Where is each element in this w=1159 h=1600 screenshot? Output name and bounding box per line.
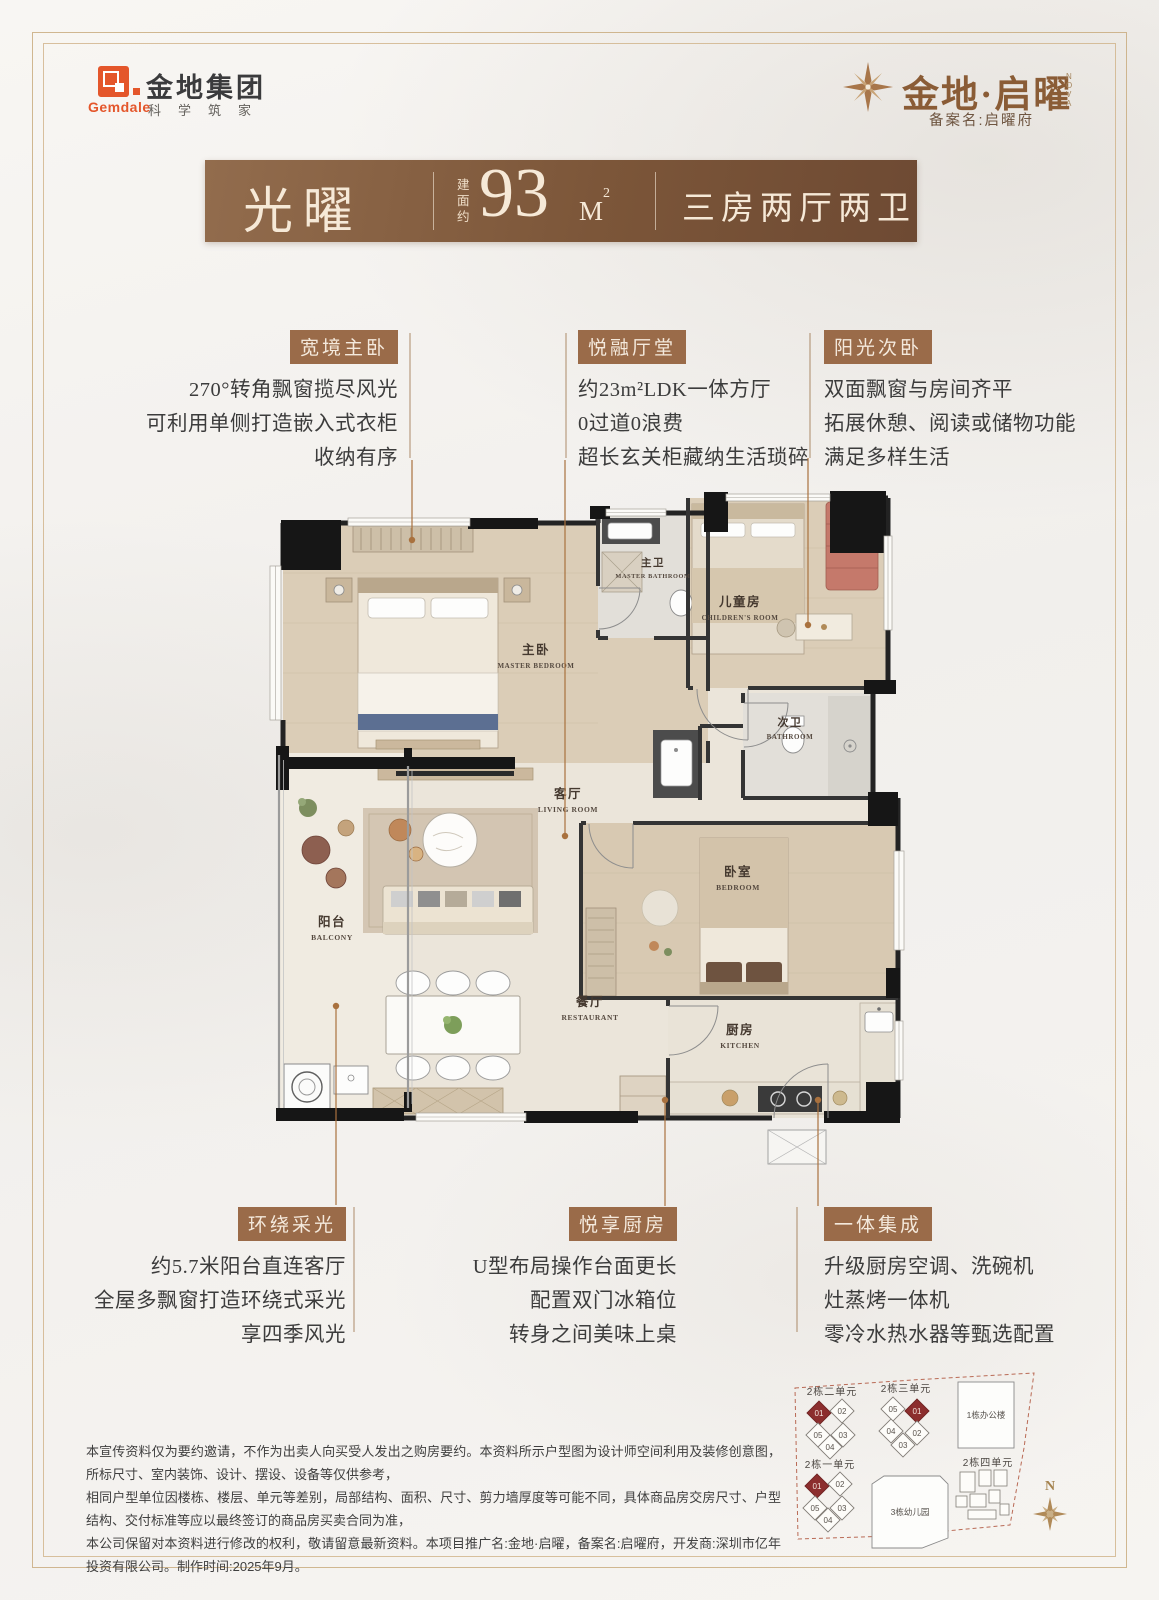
feature-living-hall: 悦融厅堂 约23m²LDK一体方厅 0过道0浪费 超长玄关柜藏纳生活琐碎 <box>578 330 813 475</box>
feature-line: 拓展休憩、阅读或储物功能 <box>824 407 1084 441</box>
feature-line: 约5.7米阳台直连客厅 <box>88 1250 346 1284</box>
entry-shaft <box>768 1130 826 1164</box>
banner-divider-1 <box>433 172 434 230</box>
feature-line: 双面飘窗与房间齐平 <box>824 373 1084 407</box>
feature-line: U型布局操作台面更长 <box>430 1250 677 1284</box>
brand-star-icon <box>843 62 893 112</box>
disclaimer-line: 相同户型单位因楼栋、楼层、单元等差别，局部结构、面积、尺寸、剪力墙厚度等可能不同… <box>86 1486 781 1532</box>
svg-text:02: 02 <box>838 1407 847 1416</box>
feature-line: 0过道0浪费 <box>578 407 813 441</box>
gemdale-name-en: Gemdale <box>88 99 151 115</box>
svg-text:03: 03 <box>838 1504 847 1513</box>
feature-line: 全屋多飘窗打造环绕式采光 <box>88 1284 346 1318</box>
feature-integrated: 一体集成 升级厨房空调、洗碗机 灶蒸烤一体机 零冷水热水器等甄选配置 <box>824 1207 1084 1352</box>
feature-badge: 宽境主卧 <box>290 330 398 364</box>
svg-text:01: 01 <box>815 1409 824 1418</box>
svg-text:客厅: 客厅 <box>553 786 582 801</box>
svg-text:01: 01 <box>913 1407 922 1416</box>
area-value: 93 <box>479 154 549 234</box>
feature-line: 配置双门冰箱位 <box>430 1284 677 1318</box>
disclaimer-line: 本公司保留对本资料进行修改的权利，敬请留意最新资料。本项目推广名:金地·启曜，备… <box>86 1532 781 1578</box>
cluster-d-label: 2栋四单元 <box>963 1456 1014 1469</box>
svg-text:03: 03 <box>839 1431 848 1440</box>
svg-text:02: 02 <box>913 1429 922 1438</box>
svg-text:BALCONY: BALCONY <box>311 933 353 942</box>
feature-master-bedroom: 宽境主卧 270°转角飘窗揽尽风光 可利用单侧打造嵌入式衣柜 收纳有序 <box>118 330 398 475</box>
feature-line: 零冷水热水器等甄选配置 <box>824 1318 1084 1352</box>
kindergarten-label: 3栋幼儿园 <box>891 1507 930 1517</box>
svg-text:01: 01 <box>813 1482 822 1491</box>
svg-text:05: 05 <box>811 1504 820 1513</box>
svg-text:儿童房: 儿童房 <box>718 594 761 609</box>
svg-text:阳台: 阳台 <box>318 914 346 929</box>
svg-text:05: 05 <box>889 1405 898 1414</box>
svg-text:厨房: 厨房 <box>726 1022 754 1037</box>
flyer-page: 金地集团 Gemdale 科学筑家 金地·启曜 NOVA 备案名:启曜府 光曜 … <box>0 0 1159 1600</box>
feature-badge: 环绕采光 <box>238 1207 346 1241</box>
area-unit-sup: 2 <box>603 186 610 202</box>
feature-line: 转身之间美味上桌 <box>430 1318 677 1352</box>
svg-text:03: 03 <box>899 1441 908 1450</box>
feature-line: 升级厨房空调、洗碗机 <box>824 1250 1084 1284</box>
area-unit: M <box>579 196 603 227</box>
feature-badge: 一体集成 <box>824 1207 932 1241</box>
site-map: 2栋二单元 01 02 05 03 04 2栋三单元 05 01 04 02 0… <box>772 1352 1092 1557</box>
feature-line: 满足多样生活 <box>824 441 1084 475</box>
feature-badge: 悦融厅堂 <box>578 330 686 364</box>
gemdale-logo-icon <box>98 66 129 97</box>
gemdale-logo-dot <box>133 88 140 95</box>
cluster-c: 01 02 05 03 04 <box>803 1472 854 1532</box>
svg-text:N: N <box>1045 1479 1055 1494</box>
svg-text:04: 04 <box>824 1516 833 1525</box>
svg-text:LIVING ROOM: LIVING ROOM <box>538 805 598 814</box>
svg-text:CHILDREN'S ROOM: CHILDREN'S ROOM <box>702 614 779 622</box>
compass-icon: N <box>1033 1479 1067 1531</box>
project-name-sub: NOVA <box>1066 72 1077 108</box>
layout-text: 三房两厅两卫 <box>682 181 916 229</box>
office-label: 1栋办公楼 <box>967 1410 1006 1420</box>
feature-line: 收纳有序 <box>118 441 398 475</box>
svg-text:02: 02 <box>836 1480 845 1489</box>
cluster-b-label: 2栋三单元 <box>881 1382 932 1395</box>
feature-second-bedroom: 阳光次卧 双面飘窗与房间齐平 拓展休憩、阅读或储物功能 满足多样生活 <box>824 330 1084 475</box>
svg-text:MASTER BEDROOM: MASTER BEDROOM <box>497 662 574 670</box>
svg-text:RESTAURANT: RESTAURANT <box>561 1013 618 1022</box>
svg-text:BEDROOM: BEDROOM <box>716 883 760 892</box>
floorplan: 主卫 MASTER BATHROOM 主卧 MASTER BEDROOM 儿童房… <box>268 478 910 1172</box>
project-record-name: 备案名:启曜府 <box>929 109 1034 130</box>
title-banner: 光曜 建面约 93 M 2 三房两厅两卫 <box>205 160 917 242</box>
banner-divider-2 <box>655 172 656 230</box>
feature-line: 约23m²LDK一体方厅 <box>578 373 813 407</box>
svg-text:主卫: 主卫 <box>641 556 665 569</box>
feature-badge: 阳光次卧 <box>824 330 932 364</box>
feature-line: 享四季风光 <box>88 1318 346 1352</box>
cluster-c-label: 2栋一单元 <box>805 1458 856 1471</box>
unit-name: 光曜 <box>243 171 363 243</box>
disclaimer-text: 本宣传资料仅为要约邀请，不作为出卖人向买受人发出之购房要约。本资料所示户型图为设… <box>86 1440 781 1578</box>
svg-text:KITCHEN: KITCHEN <box>720 1041 760 1050</box>
svg-text:BATHROOM: BATHROOM <box>767 733 814 741</box>
svg-text:餐厅: 餐厅 <box>575 994 604 1009</box>
cluster-d <box>956 1470 1009 1519</box>
feature-line: 270°转角飘窗揽尽风光 <box>118 373 398 407</box>
svg-text:次卫: 次卫 <box>778 715 803 729</box>
cluster-a-label: 2栋二单元 <box>807 1385 858 1398</box>
feature-line: 灶蒸烤一体机 <box>824 1284 1084 1318</box>
svg-text:04: 04 <box>887 1427 896 1436</box>
feature-line: 可利用单侧打造嵌入式衣柜 <box>118 407 398 441</box>
svg-text:MASTER BATHROOM: MASTER BATHROOM <box>615 573 690 580</box>
feature-surround-light: 环绕采光 约5.7米阳台直连客厅 全屋多飘窗打造环绕式采光 享四季风光 <box>88 1207 346 1352</box>
svg-text:卧室: 卧室 <box>724 864 752 879</box>
svg-text:主卧: 主卧 <box>522 642 550 657</box>
feature-badge: 悦享厨房 <box>569 1207 677 1241</box>
svg-text:05: 05 <box>814 1431 823 1440</box>
cluster-a: 01 02 05 03 04 <box>806 1399 855 1459</box>
feature-kitchen: 悦享厨房 U型布局操作台面更长 配置双门冰箱位 转身之间美味上桌 <box>430 1207 677 1352</box>
feature-line: 超长玄关柜藏纳生活琐碎 <box>578 441 813 475</box>
disclaimer-line: 本宣传资料仅为要约邀请，不作为出卖人向买受人发出之购房要约。本资料所示户型图为设… <box>86 1440 781 1486</box>
cluster-b: 05 01 04 02 03 <box>879 1397 929 1457</box>
area-label: 建面约 <box>457 177 472 225</box>
svg-text:04: 04 <box>826 1443 835 1452</box>
gemdale-slogan: 科学筑家 <box>148 100 268 119</box>
